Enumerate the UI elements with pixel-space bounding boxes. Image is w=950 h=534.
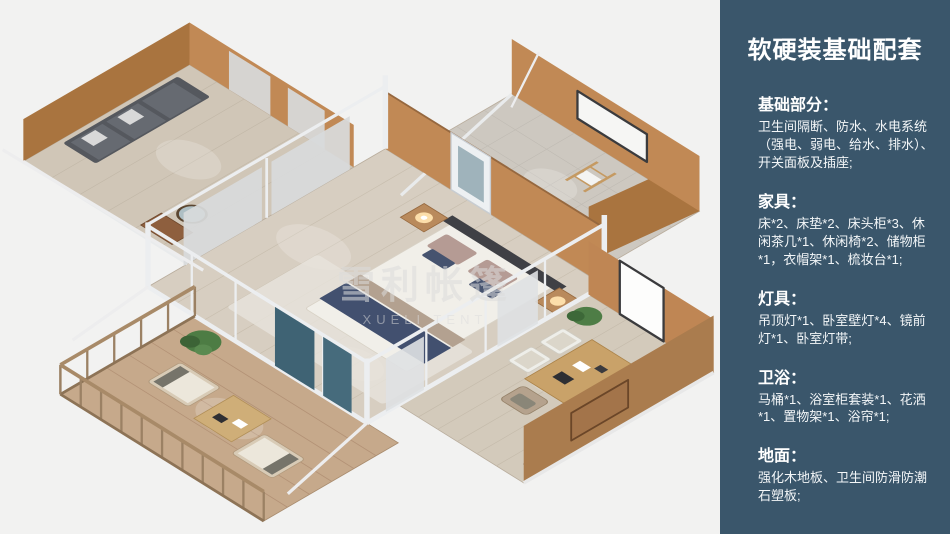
section-heading: 卫浴： — [758, 364, 936, 388]
panel-section-furniture: 家具： 床*2、床垫*2、床头柜*3、休闲茶几*1、休闲椅*2、储物柜*1，衣帽… — [758, 188, 936, 269]
section-body: 强化木地板、卫生间防滑防潮石塑板; — [758, 469, 936, 505]
panel-section-lighting: 灯具： 吊顶灯*1、卧室壁灯*4、镜前灯*1、卧室灯带; — [758, 285, 936, 348]
watermark: 雪利帐篷 XUELI TENT — [337, 265, 513, 327]
section-body: 床*2、床垫*2、床头柜*3、休闲茶几*1、休闲椅*2、储物柜*1，衣帽架*1、… — [758, 215, 936, 269]
panel-title: 软硬装基础配套 — [720, 30, 950, 65]
section-body: 卫生间隔断、防水、水电系统（强电、弱电、给水、排水）、开关面板及插座; — [758, 118, 936, 172]
slide: 雪利帐篷 XUELI TENT 软硬装基础配套 基础部分： 卫生间隔断、防水、水… — [0, 0, 950, 534]
panel-section-flooring: 地面： 强化木地板、卫生间防滑防潮石塑板; — [758, 442, 936, 505]
floor-plan-render: 雪利帐篷 XUELI TENT — [0, 0, 720, 534]
spec-panel: 软硬装基础配套 基础部分： 卫生间隔断、防水、水电系统（强电、弱电、给水、排水）… — [720, 0, 950, 534]
floor-plan-illustration: 雪利帐篷 XUELI TENT — [0, 0, 720, 534]
section-heading: 灯具： — [758, 285, 936, 309]
section-body: 吊顶灯*1、卧室壁灯*4、镜前灯*1、卧室灯带; — [758, 312, 936, 348]
section-heading: 基础部分： — [758, 91, 936, 115]
section-body: 马桶*1、浴室柜套装*1、花洒*1、置物架*1、浴帘*1; — [758, 391, 936, 427]
section-heading: 家具： — [758, 188, 936, 212]
watermark-cn: 雪利帐篷 — [337, 265, 513, 307]
watermark-en: XUELI TENT — [363, 312, 488, 327]
section-heading: 地面： — [758, 442, 936, 466]
panel-section-basics: 基础部分： 卫生间隔断、防水、水电系统（强电、弱电、给水、排水）、开关面板及插座… — [758, 91, 936, 172]
panel-section-bathroom: 卫浴： 马桶*1、浴室柜套装*1、花洒*1、置物架*1、浴帘*1; — [758, 364, 936, 427]
